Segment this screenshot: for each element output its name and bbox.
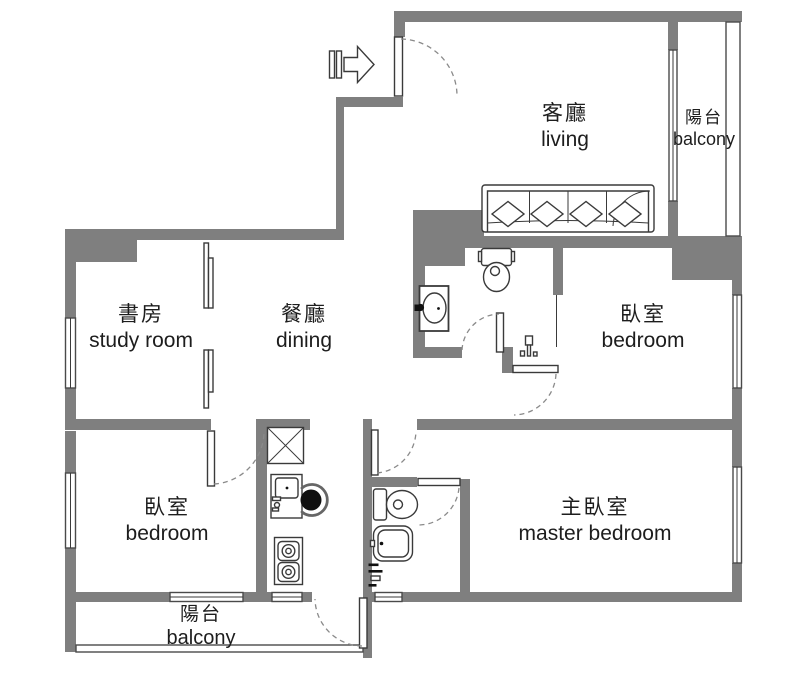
room-name-zh: 陽台 [167, 603, 236, 626]
wall-segment [336, 97, 403, 107]
room-name-zh: 書房 [89, 302, 193, 328]
wall-segment [668, 22, 678, 50]
room-label-master-bedroom: 主臥室 master bedroom [519, 495, 672, 546]
room-name-en: bedroom [602, 328, 685, 353]
wall-segment [65, 229, 344, 240]
wall-segment [65, 419, 211, 430]
wall-segment [413, 236, 465, 266]
wall-segment [243, 592, 272, 602]
wall-segment [302, 592, 312, 602]
wall-segment [65, 592, 170, 602]
wall-segment [363, 477, 417, 487]
room-name-zh: 主臥室 [519, 495, 672, 521]
master-sink-icon [371, 526, 413, 561]
wall-segment [394, 11, 742, 22]
bathroom-door-panel [497, 313, 504, 352]
gas-stove-icon [275, 538, 303, 585]
room-name-zh: 餐廳 [276, 302, 332, 328]
room-name-zh: 臥室 [602, 302, 685, 328]
wall-segment [553, 248, 563, 295]
room-label-study: 書房 study room [89, 302, 193, 353]
master-hall-door-panel [372, 430, 379, 475]
wall-segment [465, 236, 742, 248]
entry-door-arc [401, 39, 457, 95]
room-label-balcony-bottom: 陽台 balcony [167, 603, 236, 650]
sliding-partition [204, 243, 213, 408]
wall-segment [413, 347, 462, 358]
room-name-zh: 客廳 [541, 101, 589, 127]
room-name-en: dining [276, 328, 332, 353]
entry-door-panel [395, 37, 403, 96]
room-name-zh: 陽台 [673, 107, 735, 128]
wall-segment [732, 563, 742, 602]
floor-plan: 客廳 living 陽台 balcony 書房 study room 餐廳 di… [0, 0, 800, 683]
wall-segment [460, 479, 470, 595]
wall-segment [402, 592, 742, 602]
balcony-door-arc [315, 599, 362, 646]
wall-segment [732, 388, 742, 467]
kitchen-chair-icon [301, 484, 328, 515]
room-name-en: living [541, 127, 589, 152]
wall-segment [732, 280, 742, 295]
entry-arrow [330, 47, 375, 83]
sofa [482, 185, 654, 232]
room-label-bedroom-right: 臥室 bedroom [602, 302, 685, 353]
kitchen-sink-icon [271, 475, 302, 519]
bedroom-right-door-panel [513, 366, 558, 373]
wall-segment [417, 419, 742, 430]
vanity-sink-icon [415, 286, 449, 331]
balcony-door-panel [360, 598, 368, 648]
room-label-balcony-top: 陽台 balcony [673, 107, 735, 150]
bedroom-right-door-arc [514, 374, 556, 415]
wall-segment [668, 201, 678, 241]
room-name-en: master bedroom [519, 521, 672, 546]
room-name-en: bedroom [126, 521, 209, 546]
wall-segment [394, 11, 405, 37]
refrigerator-icon [268, 428, 304, 464]
master-hall-door-arc [377, 431, 416, 473]
room-name-en: study room [89, 328, 193, 353]
room-name-zh: 臥室 [126, 495, 209, 521]
wall-segment [672, 248, 742, 280]
room-label-living: 客廳 living [541, 101, 589, 152]
bathroom-door-arc [462, 314, 499, 350]
master-bathroom-door-arc [419, 488, 459, 525]
room-name-en: balcony [673, 128, 735, 150]
wall-segment [336, 97, 344, 232]
master-bathroom [369, 489, 418, 587]
master-bathroom-door-panel [418, 479, 460, 486]
toilet-icon [479, 249, 515, 292]
wall-segment [65, 240, 76, 318]
room-name-en: balcony [167, 626, 236, 650]
shower-mixer-icon [521, 336, 538, 356]
wall-segment [65, 388, 76, 419]
master-toilet-icon [374, 489, 418, 520]
kitchen [268, 428, 328, 585]
room-label-bedroom-left: 臥室 bedroom [126, 495, 209, 546]
room-label-dining: 餐廳 dining [276, 302, 332, 353]
wall-segment [65, 431, 76, 473]
bedroom-left-door-panel [208, 431, 215, 486]
